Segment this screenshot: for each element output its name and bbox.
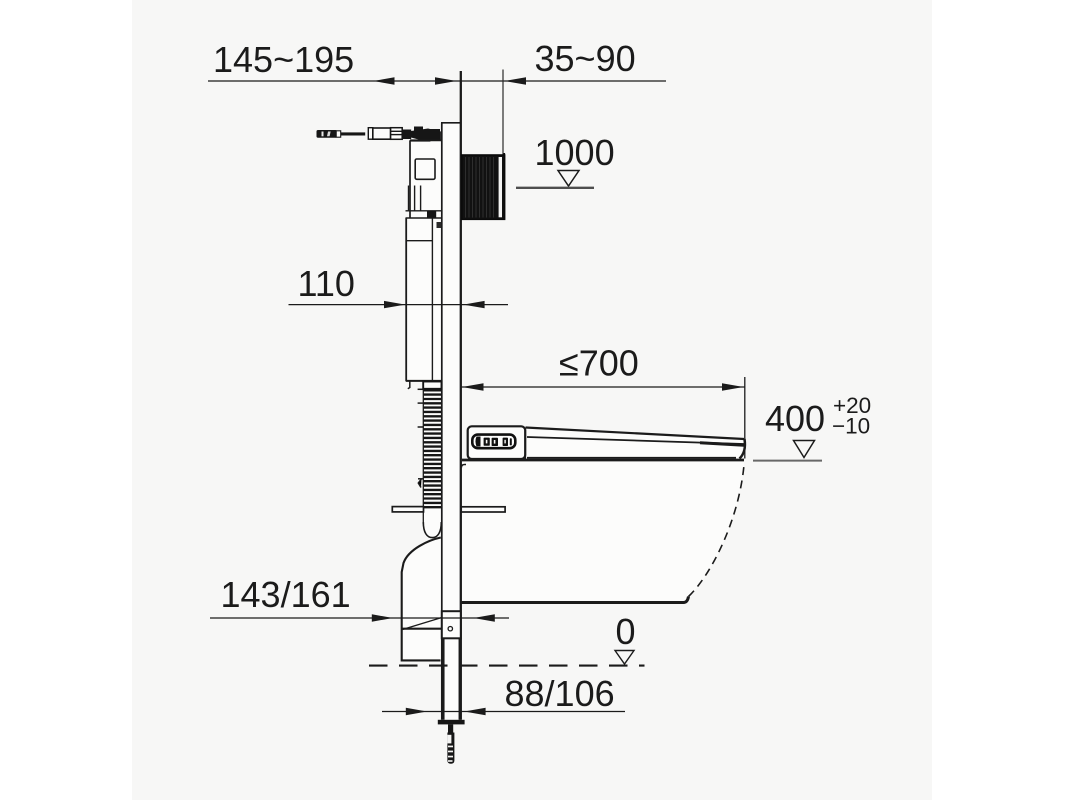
svg-text:0: 0 (616, 611, 636, 652)
svg-text:35~90: 35~90 (535, 38, 636, 79)
svg-text:110: 110 (298, 263, 355, 304)
svg-text:143/161: 143/161 (221, 574, 351, 615)
svg-text:≤700: ≤700 (559, 343, 639, 384)
svg-text:−10: −10 (832, 414, 870, 439)
svg-text:400: 400 (765, 398, 825, 439)
svg-text:1000: 1000 (535, 132, 615, 173)
svg-text:145~195: 145~195 (213, 39, 354, 80)
svg-text:88/106: 88/106 (505, 673, 615, 714)
